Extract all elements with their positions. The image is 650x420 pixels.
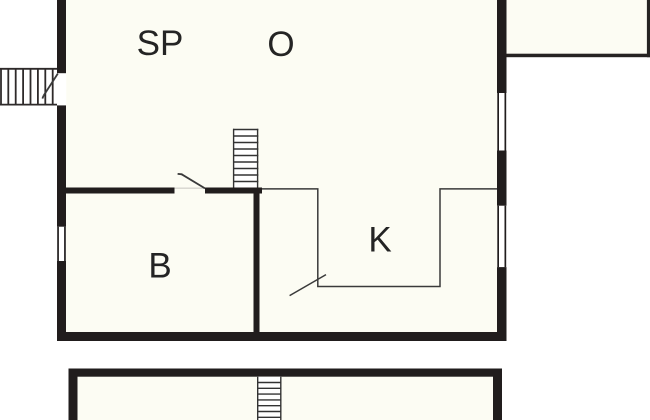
svg-text:B: B bbox=[148, 247, 171, 286]
svg-text:K: K bbox=[368, 221, 391, 260]
svg-text:O: O bbox=[267, 25, 294, 64]
svg-text:SP: SP bbox=[137, 24, 184, 63]
